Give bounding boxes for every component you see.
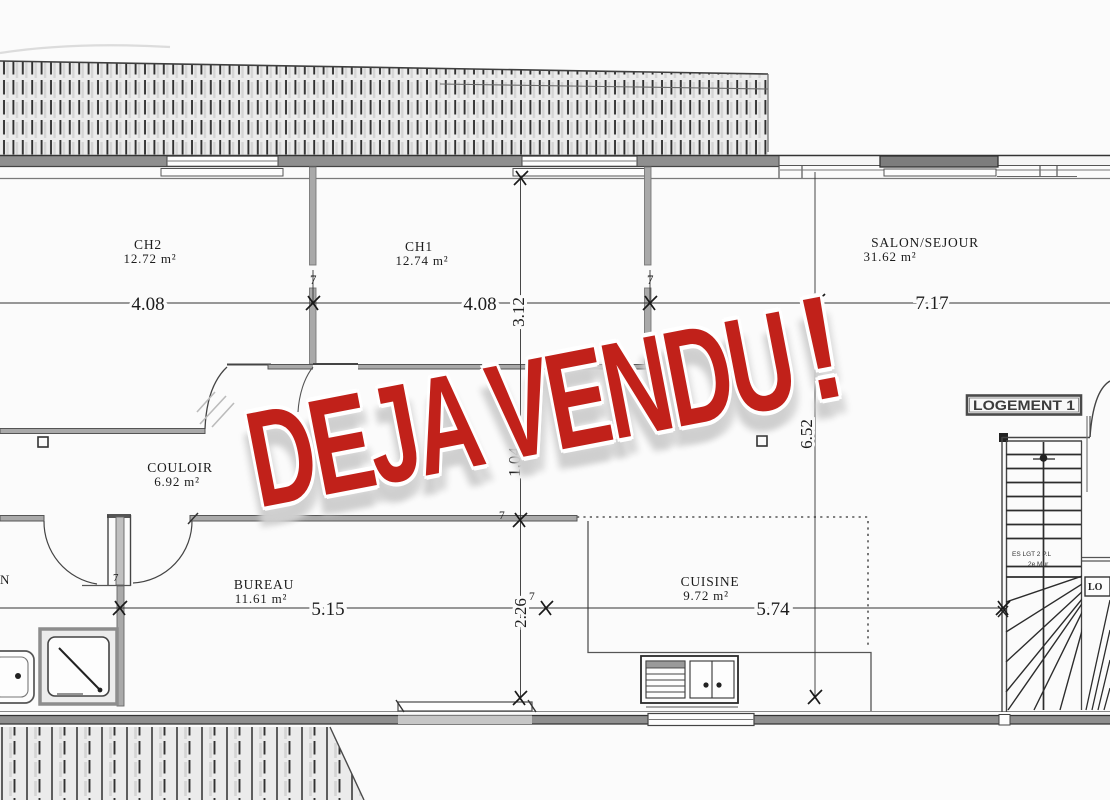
svg-text:12.74 m²: 12.74 m² (396, 253, 449, 268)
svg-text:6.92 m²: 6.92 m² (154, 474, 200, 489)
svg-text:11.61 m²: 11.61 m² (235, 591, 287, 606)
svg-text:12.72 m²: 12.72 m² (124, 251, 177, 266)
svg-text:31.62 m²: 31.62 m² (864, 249, 917, 264)
svg-text:6.52: 6.52 (797, 419, 816, 449)
svg-text:LOGEMENT 1: LOGEMENT 1 (973, 397, 1075, 413)
svg-text:ES LGT 2 P.L: ES LGT 2 P.L (1012, 551, 1052, 558)
svg-text:N: N (0, 572, 10, 587)
svg-text:2.26: 2.26 (511, 598, 530, 628)
svg-text:7.17: 7.17 (915, 293, 948, 314)
svg-text:COULOIR: COULOIR (147, 460, 213, 475)
svg-text:4.08: 4.08 (463, 294, 496, 315)
svg-text:9.72 m²: 9.72 m² (683, 588, 729, 603)
svg-text:7: 7 (499, 510, 505, 522)
svg-text:7: 7 (113, 572, 119, 584)
svg-text:4.08: 4.08 (131, 294, 164, 315)
svg-text:LO: LO (1088, 582, 1103, 593)
svg-text:2e Mur: 2e Mur (1028, 561, 1049, 568)
svg-text:CH1: CH1 (405, 239, 433, 254)
svg-text:5.74: 5.74 (756, 599, 790, 620)
svg-text:5.15: 5.15 (311, 599, 344, 620)
svg-text:3.12: 3.12 (509, 297, 528, 327)
svg-text:7: 7 (647, 272, 654, 287)
svg-text:7: 7 (529, 591, 535, 603)
svg-text:CH2: CH2 (134, 237, 162, 252)
svg-text:CUISINE: CUISINE (681, 574, 740, 589)
svg-text:7: 7 (310, 272, 317, 287)
svg-text:SALON/SEJOUR: SALON/SEJOUR (871, 235, 979, 250)
svg-text:1.04: 1.04 (505, 447, 524, 477)
svg-text:BUREAU: BUREAU (234, 577, 294, 592)
